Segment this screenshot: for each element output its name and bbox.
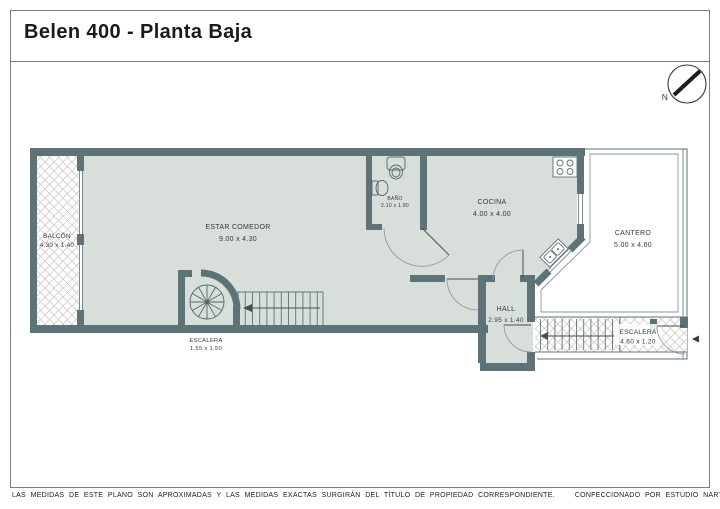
stove <box>553 157 577 177</box>
exterior-staircase: ESCALERA 4.60 x 1.20 <box>535 317 699 354</box>
compass-north-label: N <box>662 92 668 102</box>
bano-label: BAÑO <box>387 195 402 202</box>
cocina-label: COCINA <box>477 199 506 206</box>
escalera-exterior-label: ESCALERA <box>619 329 656 336</box>
escalera-interior-label: ESCALERA <box>189 338 222 344</box>
bano-dims: 2.10 x 1.80 <box>381 203 409 209</box>
estar-dims: 9.00 x 4.30 <box>219 236 257 243</box>
estar-label: ESTAR COMEDOR <box>205 224 270 231</box>
floor-plan-page: Belen 400 - Planta Baja <box>0 0 720 509</box>
footer: LAS MEDIDAS DE ESTE PLANO SON APROXIMADA… <box>12 492 708 499</box>
balcony <box>37 156 84 325</box>
escalera-interior-dims: 1.55 x 1.50 <box>190 346 222 352</box>
cantero-label: CANTERO <box>615 230 652 237</box>
entry-arrow <box>692 336 699 343</box>
hall-label: HALL <box>497 306 516 313</box>
compass: N <box>662 65 706 103</box>
balcon-label: BALCÓN <box>43 231 71 240</box>
cocina-dims: 4.00 x 4.00 <box>473 211 511 218</box>
hall-dims: 2.95 x 1.40 <box>488 317 524 324</box>
balcon-dims: 4.30 x 1.40 <box>40 242 75 249</box>
escalera-exterior-dims: 4.60 x 1.20 <box>620 339 656 346</box>
kitchen-window <box>579 194 583 224</box>
cantero-dims: 5.00 x 4.60 <box>614 242 652 249</box>
floor-plan-drawing: ESCALERA 4.60 x 1.20 <box>0 0 720 509</box>
footer-credit: CONFECCIONADO POR ESTUDIO NARTEX <box>575 492 720 499</box>
footer-disclaimer: LAS MEDIDAS DE ESTE PLANO SON APROXIMADA… <box>12 492 555 499</box>
spiral-stair <box>190 285 224 319</box>
